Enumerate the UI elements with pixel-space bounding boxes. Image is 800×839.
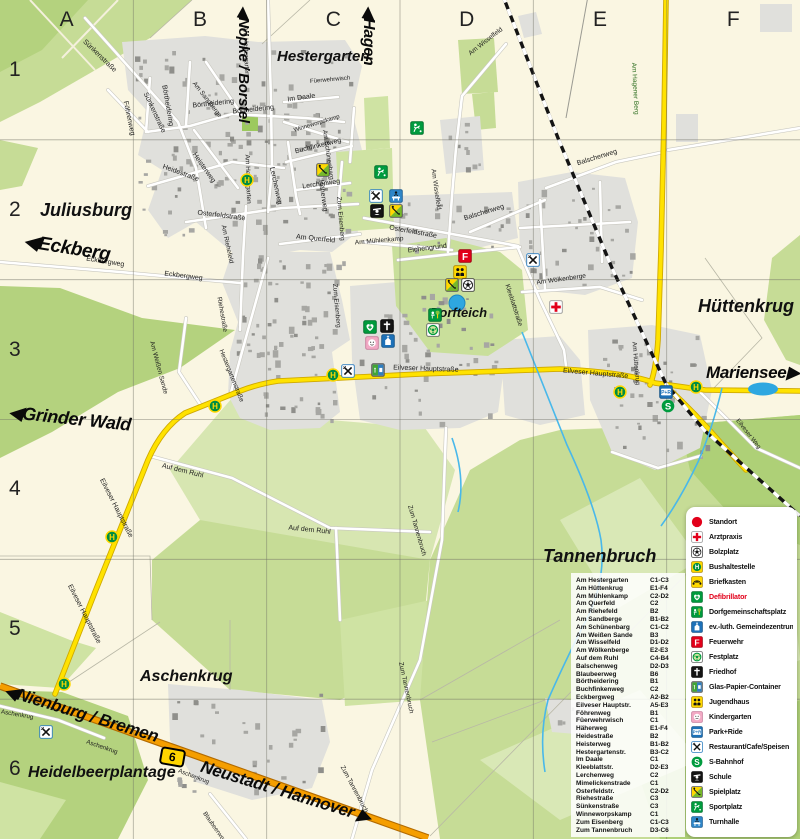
street-index-gridref: A2-B2 <box>650 694 669 701</box>
street-index-row: Am SchünenbargC1-C2 <box>576 624 682 632</box>
street-index-gridref: C2-D2 <box>650 593 669 600</box>
street-index-gridref: B1-B2 <box>650 616 669 623</box>
svg-text:S: S <box>694 757 700 766</box>
legend-item-label: S-Bahnhof <box>709 758 744 766</box>
street-index-gridref: C1 <box>650 717 658 724</box>
street-index-name: Lerchenweg <box>576 772 614 779</box>
street-index-name: Osterfeldstr. <box>576 788 614 795</box>
friedhof-icon <box>691 666 703 678</box>
street-index-name: Am Riehefeld <box>576 608 618 615</box>
jugend-icon <box>691 696 703 708</box>
legend-item-label: Festplatz <box>709 653 738 661</box>
legend-item: Sportplatz <box>691 799 793 814</box>
street-index-row: Am SandbergeB1-B2 <box>576 616 682 624</box>
street-index-name: Kleeblattstr. <box>576 764 613 771</box>
feuerwehr-icon: F <box>691 636 703 648</box>
street-index-row: Am HestergartenC1-C3 <box>576 577 682 585</box>
legend-item-label: Standort <box>709 518 737 526</box>
street-index-row: Kleeblattstr.D2-E3 <box>576 764 682 772</box>
svg-text:H: H <box>695 565 699 571</box>
street-index-row: Am RiehefeldB2 <box>576 608 682 616</box>
street-index-row: SünkenstraßeC3 <box>576 803 682 811</box>
sbahn-icon: S <box>691 756 703 768</box>
street-index-row: Hestergartenstr.B3-C2 <box>576 749 682 757</box>
legend-item: HBushaltestelle <box>691 559 793 574</box>
legend-item: Standort <box>691 514 793 529</box>
street-index-name: Mimelickenstrade <box>576 780 631 787</box>
street-index-row: WinneworpskampC1 <box>576 811 682 819</box>
street-index-gridref: C1-C3 <box>650 819 669 826</box>
legend-item-label: Kindergarten <box>709 713 751 721</box>
bus-icon: H <box>691 561 703 573</box>
street-index-gridref: C3 <box>650 803 658 810</box>
street-index-name: Füerwehrwisch <box>576 717 623 724</box>
legend-item: SS-Bahnhof <box>691 754 793 769</box>
street-index-gridref: C1 <box>650 756 658 763</box>
street-index-name: Eilveser Hauptstr. <box>576 702 631 709</box>
legend-item: Briefkasten <box>691 574 793 589</box>
svg-text:F: F <box>694 637 699 647</box>
street-index-gridref: C4-B4 <box>650 655 669 662</box>
street-index-name: Zum Tannenbruch <box>576 827 632 834</box>
street-index-gridref: C3 <box>650 795 658 802</box>
legend-item: Friedhof <box>691 664 793 679</box>
street-index-gridref: B3 <box>650 632 658 639</box>
street-index-name: Buchfinkenweg <box>576 686 624 693</box>
street-index-row: Am WisselfeldD1-D2 <box>576 639 682 647</box>
street-index-panel: Am HestergartenC1-C3Am HüttenkrugE1-F4Am… <box>571 573 685 837</box>
street-index-row: Am HüttenkrugE1-F4 <box>576 585 682 593</box>
street-index-gridref: B6 <box>650 671 658 678</box>
legend-item: Kindergarten <box>691 709 793 724</box>
street-index-name: Föhrenweg <box>576 710 611 717</box>
street-index-gridref: D2-E3 <box>650 764 668 771</box>
legend-item-label: Feuerwehr <box>709 638 744 646</box>
legend-item-label: Defibrillator <box>709 593 747 601</box>
arzt-icon <box>691 531 703 543</box>
street-index-row: BlaubeerwegB6 <box>576 671 682 679</box>
street-index-row: Zum EisenbergC1-C3 <box>576 819 682 827</box>
dorfgem-icon <box>691 606 703 618</box>
street-index-row: Osterfeldstr.C2-D2 <box>576 788 682 796</box>
legend-item-label: Bolzplatz <box>709 548 739 556</box>
legend-item-label: Dorfgemeinschaftsplatz <box>709 608 786 616</box>
street-index-row: HeidestraßeB2 <box>576 733 682 741</box>
bolzplatz-icon <box>691 546 703 558</box>
legend-item: Arztpraxis <box>691 529 793 544</box>
street-index-name: Am Schünenbarg <box>576 624 630 631</box>
street-index-row: Am Weißen SandeB3 <box>576 632 682 640</box>
legend-item-label: Spielplatz <box>709 788 741 796</box>
legend-item: Schule <box>691 769 793 784</box>
street-index-name: Im Daale <box>576 756 603 763</box>
legend-item: Glas-Papier-Container <box>691 679 793 694</box>
street-index-gridref: E1-F4 <box>650 725 668 732</box>
restaurant-icon <box>691 741 703 753</box>
svg-text:P+R: P+R <box>693 729 701 734</box>
legend-item-label: Turnhalle <box>709 818 739 826</box>
street-index-row: Eilveser Hauptstr.A5-E3 <box>576 702 682 710</box>
gemeinde-icon <box>691 621 703 633</box>
turnhalle-icon <box>691 816 703 828</box>
village-map: ABCDEF123456SünkenstraßeSünkenstraßeBört… <box>0 0 800 839</box>
street-index-row: RiehestraßeC3 <box>576 795 682 803</box>
street-index-row: Im DaaleC1 <box>576 756 682 764</box>
street-index-row: Am MühlenkampC2-D2 <box>576 593 682 601</box>
street-index-gridref: C2 <box>650 686 658 693</box>
street-index-name: Sünkenstraße <box>576 803 619 810</box>
street-index-name: Am Hestergarten <box>576 577 628 584</box>
street-index-name: Riehestraße <box>576 795 613 802</box>
briefkasten-icon <box>691 576 703 588</box>
street-index-name: Am Mühlenkamp <box>576 593 628 600</box>
glas-icon <box>691 681 703 693</box>
legend-item-label: Bushaltestelle <box>709 563 755 571</box>
legend-item: Jugendhaus <box>691 694 793 709</box>
legend-item: Festplatz <box>691 649 793 664</box>
street-index-gridref: C1 <box>650 780 658 787</box>
street-index-name: Heisterweg <box>576 741 611 748</box>
street-index-name: Am Weißen Sande <box>576 632 633 639</box>
legend-item: P+RPark+Ride <box>691 724 793 739</box>
street-index-name: Blaubeerweg <box>576 671 616 678</box>
street-index-row: BörtheideringB1 <box>576 678 682 686</box>
legend-item: Dorfgemeinschaftsplatz <box>691 604 793 619</box>
street-index-row: FüerwehrwischC1 <box>576 717 682 725</box>
legend-item-label: Park+Ride <box>709 728 743 736</box>
street-index-name: Am Wisselfeld <box>576 639 620 646</box>
street-index-row: BalschenwegD2-D3 <box>576 663 682 671</box>
street-index-gridref: D3-C6 <box>650 827 669 834</box>
street-index-gridref: C1 <box>650 811 658 818</box>
street-index-gridref: A5-E3 <box>650 702 668 709</box>
street-index-row: Am WölkenbergeE2-E3 <box>576 647 682 655</box>
legend-item-label: Schule <box>709 773 731 781</box>
sportplatz-icon <box>691 801 703 813</box>
schule-icon <box>691 771 703 783</box>
defi-icon <box>691 591 703 603</box>
street-index-gridref: E2-E3 <box>650 647 668 654</box>
legend-item: FFeuerwehr <box>691 634 793 649</box>
street-index-name: Am Querfeld <box>576 600 615 607</box>
legend-item: Defibrillator <box>691 589 793 604</box>
legend-item-label: ev.-luth. Gemeindezentrum <box>709 623 793 631</box>
street-index-name: Zum Eisenberg <box>576 819 623 826</box>
street-index-name: Börtheidering <box>576 678 619 685</box>
street-index-name: Winneworpskamp <box>576 811 632 818</box>
street-index-gridref: D2-D3 <box>650 663 669 670</box>
street-index-row: Am QuerfeldC2 <box>576 600 682 608</box>
street-index-row: EckbergwegA2-B2 <box>576 694 682 702</box>
legend-item: ev.-luth. Gemeindezentrum <box>691 619 793 634</box>
street-index-gridref: B2 <box>650 733 658 740</box>
street-index-row: MimelickenstradeC1 <box>576 780 682 788</box>
street-index-gridref: B1-B2 <box>650 741 669 748</box>
street-index-name: Hestergartenstr. <box>576 749 626 756</box>
legend-item-label: Glas-Papier-Container <box>709 683 781 691</box>
street-index-name: Häherweg <box>576 725 607 732</box>
street-index-row: LerchenwegC2 <box>576 772 682 780</box>
street-index-name: Heidestraße <box>576 733 613 740</box>
street-index-name: Eckbergweg <box>576 694 614 701</box>
legend-item: Spielplatz <box>691 784 793 799</box>
street-index-gridref: B1 <box>650 678 658 685</box>
street-index-row: Zum TannenbruchD3-C6 <box>576 827 682 835</box>
standort-icon <box>691 516 703 528</box>
street-index-row: Auf dem RuhlC4-B4 <box>576 655 682 663</box>
street-index-gridref: C1-C2 <box>650 624 669 631</box>
street-index-name: Auf dem Ruhl <box>576 655 618 662</box>
legend-panel: StandortArztpraxisBolzplatzHBushaltestel… <box>686 507 797 837</box>
festplatz-icon <box>691 651 703 663</box>
street-index-row: BuchfinkenwegC2 <box>576 686 682 694</box>
street-index-gridref: D1-D2 <box>650 639 669 646</box>
spielplatz-icon <box>691 786 703 798</box>
street-index-gridref: B3-C2 <box>650 749 669 756</box>
parkride-icon: P+R <box>691 726 703 738</box>
street-index-gridref: C2 <box>650 600 658 607</box>
legend-item-label: Restaurant/Cafe/Speisen <box>709 743 789 751</box>
street-index-gridref: B2 <box>650 608 658 615</box>
street-index-gridref: B1 <box>650 710 658 717</box>
street-index-gridref: C1-C3 <box>650 577 669 584</box>
street-index-gridref: E1-F4 <box>650 585 668 592</box>
legend-item-label: Friedhof <box>709 668 736 676</box>
legend-item: Restaurant/Cafe/Speisen <box>691 739 793 754</box>
legend-item: Turnhalle <box>691 814 793 829</box>
legend-item-label: Jugendhaus <box>709 698 749 706</box>
street-index-name: Am Hüttenkrug <box>576 585 623 592</box>
street-index-gridref: C2 <box>650 772 658 779</box>
street-index-row: HeisterwegB1-B2 <box>576 741 682 749</box>
legend-item-label: Arztpraxis <box>709 533 742 541</box>
legend-item: Bolzplatz <box>691 544 793 559</box>
kiga-icon <box>691 711 703 723</box>
street-index-name: Balschenweg <box>576 663 618 670</box>
legend-item-label: Sportplatz <box>709 803 742 811</box>
legend-item-label: Briefkasten <box>709 578 746 586</box>
street-index-name: Am Wölkenberge <box>576 647 629 654</box>
street-index-row: HäherwegE1-F4 <box>576 725 682 733</box>
street-index-gridref: C2-D2 <box>650 788 669 795</box>
street-index-row: FöhrenwegB1 <box>576 710 682 718</box>
street-index-name: Am Sandberge <box>576 616 622 623</box>
